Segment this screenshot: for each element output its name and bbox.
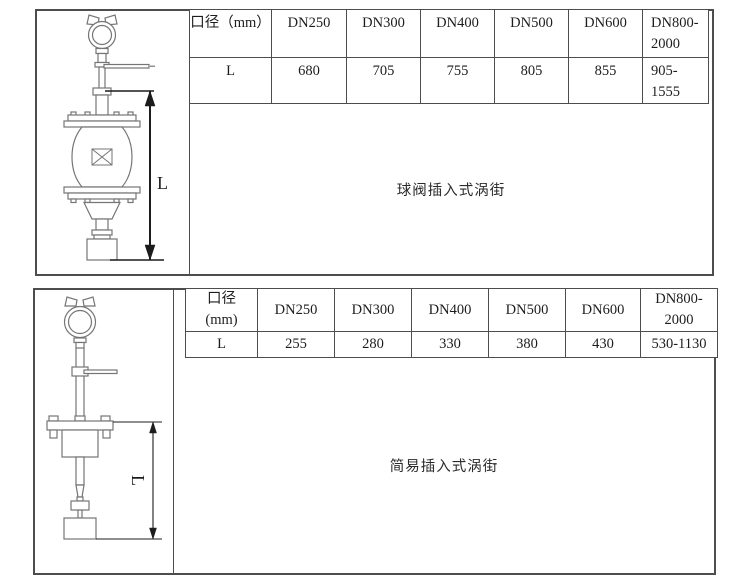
header-dn400: DN400 [421, 10, 495, 58]
table-header-row: 口径（mm） DN250 DN300 DN400 DN500 DN600 DN8… [190, 10, 709, 58]
header-diameter: 口径 (mm) [186, 289, 258, 332]
transmitter-head-icon [64, 15, 155, 260]
header-dn800-2000: DN800- 2000 [641, 289, 718, 332]
value-dn400: 330 [412, 332, 489, 358]
value-dn500: 805 [495, 58, 569, 104]
bottom-content: 口径 (mm) DN250 DN300 DN400 DN500 DN600 DN… [174, 290, 714, 573]
table-header-row: 口径 (mm) DN250 DN300 DN400 DN500 DN600 DN… [186, 289, 718, 332]
value-dn250: 255 [258, 332, 335, 358]
value-dn300: 705 [347, 58, 421, 104]
header-dn500: DN500 [489, 289, 566, 332]
top-caption-area: 球阀插入式涡街 [190, 104, 712, 274]
transmitter-head-icon [47, 297, 117, 539]
ball-valve-section: L 口径（mm） DN250 DN300 DN400 DN500 DN600 D… [35, 9, 714, 276]
header-dn400: DN400 [412, 289, 489, 332]
header-dn600: DN600 [569, 10, 643, 58]
header-dn250: DN250 [258, 289, 335, 332]
header-dn800-2000: DN800- 2000 [643, 10, 709, 58]
row-label: L [190, 58, 272, 104]
bottom-caption-area: 简易插入式涡街 [174, 358, 714, 573]
ball-valve-dimension-table: 口径（mm） DN250 DN300 DN400 DN500 DN600 DN8… [189, 9, 709, 104]
top-caption: 球阀插入式涡街 [397, 179, 506, 200]
value-dn300: 280 [335, 332, 412, 358]
header-dn300: DN300 [347, 10, 421, 58]
ball-valve-meter-drawing: L [37, 11, 189, 274]
value-dn800-2000: 905- 1555 [643, 58, 709, 104]
simple-insertion-dimension-table: 口径 (mm) DN250 DN300 DN400 DN500 DN600 DN… [185, 288, 718, 358]
table-row: L 255 280 330 380 430 530-1130 [186, 332, 718, 358]
header-dn250: DN250 [272, 10, 347, 58]
value-dn500: 380 [489, 332, 566, 358]
value-dn250: 680 [272, 58, 347, 104]
dimension-label: L [157, 173, 168, 193]
valve-symbol-icon [92, 149, 112, 165]
value-dn600: 855 [569, 58, 643, 104]
bottom-caption: 简易插入式涡街 [390, 455, 499, 476]
header-diameter: 口径（mm） [190, 10, 272, 58]
header-dn300: DN300 [335, 289, 412, 332]
simple-insertion-meter-drawing: L [35, 290, 173, 573]
row-label: L [186, 332, 258, 358]
header-dn500: DN500 [495, 10, 569, 58]
table-row: L 680 705 755 805 855 905- 1555 [190, 58, 709, 104]
header-dn600: DN600 [566, 289, 641, 332]
top-content: 口径（mm） DN250 DN300 DN400 DN500 DN600 DN8… [190, 11, 712, 274]
dimension-label: L [128, 475, 148, 486]
value-dn400: 755 [421, 58, 495, 104]
value-dn600: 430 [566, 332, 641, 358]
simple-insertion-section: L 口径 (mm) DN250 DN300 DN400 DN500 DN600 … [33, 288, 716, 575]
value-dn800-2000: 530-1130 [641, 332, 718, 358]
